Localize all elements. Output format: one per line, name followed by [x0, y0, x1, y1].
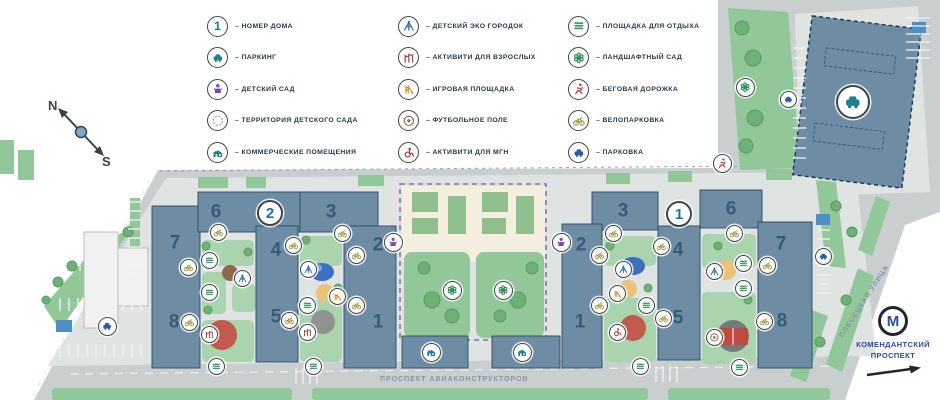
eco-icon	[709, 266, 720, 277]
legend-icon-land	[568, 47, 589, 68]
legend-item-eco: – ДЕТСКИЙ ЭКО ГОРОДОК	[398, 15, 523, 37]
bike-icon	[351, 300, 362, 311]
eco-icon	[618, 264, 629, 275]
bench-icon	[738, 283, 749, 294]
legend-icon-parkingcar	[207, 47, 228, 68]
play-icon	[612, 288, 623, 299]
map-icon-bike	[281, 312, 298, 329]
run-icon	[572, 82, 586, 96]
legend-icon-bike	[568, 110, 589, 131]
map-icon-num-number: 2	[257, 200, 283, 226]
legend-item-mgn: – АКТИВИТИ ДЛЯ МГН	[398, 141, 509, 163]
bench-icon	[204, 287, 215, 298]
map-icon-bike	[726, 225, 743, 242]
map-icon-bench	[735, 255, 752, 272]
kind-icon	[211, 82, 225, 96]
map-icon-bike	[210, 224, 227, 241]
adults-icon	[204, 329, 215, 340]
legend-icon-commercial	[207, 142, 228, 163]
legend-label: – АКТИВИТИ ДЛЯ МГН	[426, 149, 509, 156]
map-icon-parkblue	[815, 248, 832, 265]
bike-icon	[183, 262, 194, 273]
kind-icon	[387, 236, 399, 248]
metro-station-line1: КОМЕНДАНТСКИЙ	[846, 340, 940, 351]
commercial-icon	[516, 346, 528, 358]
map-icon-bench	[731, 359, 748, 376]
metro-station-line2: ПРОСПЕКТ	[846, 351, 940, 362]
legend-label: – ИГРОВАЯ ПЛОЩАДКА	[426, 86, 515, 93]
map-icon-bike	[181, 314, 198, 331]
parkblue-icon	[572, 146, 586, 160]
parkblue-icon	[783, 94, 794, 105]
adults-icon	[402, 51, 416, 65]
eco-icon	[303, 264, 314, 275]
legend-item-parkingcar: – ПАРКИНГ	[207, 47, 276, 69]
map-icon-play	[609, 285, 626, 302]
legend-icon-play	[398, 79, 419, 100]
legend-label: – КОММЕРЧЕСКИЕ ПОМЕЩЕНИЯ	[235, 149, 356, 156]
play-icon	[332, 291, 343, 302]
legend-label: – НОМЕР ДОМА	[235, 23, 293, 30]
legend-label: – АКТИВИТИ ДЛЯ ВЗРОСЛЫХ	[426, 54, 536, 61]
legend-item-run: – БЕГОВАЯ ДОРОЖКА	[568, 78, 678, 100]
legend-item-kind: – ДЕТСКИЙ САД	[207, 78, 295, 100]
building-number: 8	[169, 313, 180, 332]
bike-icon	[608, 228, 619, 239]
legend-label: – ВЕЛОПАРКОВКА	[596, 117, 665, 124]
legend-icon-foot	[398, 110, 419, 131]
legend-icon-adults	[398, 47, 419, 68]
map-icon-bench	[299, 297, 316, 314]
building-number: 2	[373, 236, 384, 255]
building-number: 5	[673, 309, 684, 328]
run-icon	[716, 157, 728, 169]
land-icon	[739, 81, 751, 93]
building-number: 3	[326, 203, 337, 222]
parkblue-icon	[101, 320, 113, 332]
bench-icon	[211, 361, 222, 372]
map-icon-parkingcar	[836, 85, 870, 119]
bench-icon	[641, 300, 652, 311]
eco-icon	[237, 273, 248, 284]
legend-label: – ПЛОЩАДКА ДЛЯ ОТДЫХА	[596, 23, 699, 30]
eco-icon	[402, 19, 416, 33]
house-number-text: 1	[675, 207, 683, 222]
bike-icon	[288, 240, 299, 251]
map-icon-bike	[180, 259, 197, 276]
parkingcar-icon	[842, 91, 864, 113]
house-number-text: 1	[214, 20, 221, 32]
legend-item-adults: – АКТИВИТИ ДЛЯ ВЗРОСЛЫХ	[398, 47, 536, 69]
map-icon-parkblue	[780, 91, 797, 108]
compass: N S	[36, 92, 122, 176]
site-plan-page: N S 1– НОМЕР ДОМА– ПАРКИНГ– ДЕТСКИЙ САД–…	[0, 0, 940, 400]
parkingcar-icon	[211, 51, 225, 65]
map-icon-kind	[384, 233, 403, 252]
map-icon-commercial	[422, 343, 441, 362]
map-icon-bike	[348, 297, 365, 314]
map-icon-adults	[299, 324, 316, 341]
bike-icon	[759, 316, 770, 327]
legend-item-parkblue: – ПАРКОВКА	[568, 141, 643, 163]
metro-direction-arrow	[863, 364, 923, 378]
legend-label: – ЛАНДШАФТНЫЙ САД	[596, 54, 682, 61]
map-icon-eco	[615, 261, 632, 278]
bench-icon	[302, 300, 313, 311]
bike-icon	[572, 114, 586, 128]
legend-label: – ПАРКИНГ	[235, 54, 276, 61]
legend-item-land: – ЛАНДШАФТНЫЙ САД	[568, 47, 682, 69]
building-number: 7	[170, 234, 181, 253]
foot-icon	[709, 332, 720, 343]
map-icon-land	[443, 281, 462, 300]
map-icon-eco	[706, 263, 723, 280]
legend-item-bench: – ПЛОЩАДКА ДЛЯ ОТДЫХА	[568, 15, 699, 37]
bike-icon	[762, 260, 773, 271]
commercial-icon	[425, 346, 437, 358]
bike-icon	[658, 313, 669, 324]
kind-icon	[555, 236, 567, 248]
map-icon-land	[736, 78, 755, 97]
play-icon	[402, 82, 416, 96]
legend-label: – БЕГОВАЯ ДОРОЖКА	[596, 86, 678, 93]
map-icon-land	[494, 281, 513, 300]
map-icon-bench	[201, 252, 218, 269]
adults-icon	[302, 327, 313, 338]
legend-label: – ТЕРРИТОРИЯ ДЕТСКОГО САДА	[235, 117, 358, 124]
legend-label: – ДЕТСКИЙ САД	[235, 86, 295, 93]
building-number: 1	[575, 313, 586, 332]
commercial-icon	[211, 146, 225, 160]
building	[152, 206, 200, 368]
bench-icon	[734, 362, 745, 373]
metro-icon: М	[878, 306, 908, 336]
legend-icon-num-number: 1	[207, 16, 228, 37]
land-icon	[446, 284, 458, 296]
building-number: 6	[211, 203, 222, 222]
legend-item-bike: – ВЕЛОПАРКОВКА	[568, 110, 665, 132]
bench-icon	[635, 361, 646, 372]
building-number: 8	[777, 312, 788, 331]
map-icon-bench	[632, 358, 649, 375]
map-icon-bike	[759, 257, 776, 274]
map-icon-num-number: 1	[666, 201, 692, 227]
parkblue-icon	[818, 251, 829, 262]
map-icon-eco	[234, 270, 251, 287]
map-icon-bike	[653, 238, 670, 255]
bike-icon	[729, 228, 740, 239]
foot-icon	[402, 114, 416, 128]
map-icon-kind	[552, 233, 571, 252]
legend-item-territory: – ТЕРРИТОРИЯ ДЕТСКОГО САДА	[207, 110, 358, 132]
bike-icon	[656, 241, 667, 252]
building-number: 4	[673, 241, 684, 260]
street-label-prospekt-aviakonstruktorov: ПРОСПЕКТ АВИАКОНСТРУКТОРОВ	[380, 376, 529, 383]
legend-label: – ФУТБОЛЬНОЕ ПОЛЕ	[426, 117, 508, 124]
land-icon	[497, 284, 509, 296]
land-icon	[572, 51, 586, 65]
map-icon-foot	[706, 329, 723, 346]
map-icon-mgn	[609, 324, 626, 341]
legend-item-num: 1– НОМЕР ДОМА	[207, 15, 293, 37]
legend-icon-mgn	[398, 142, 419, 163]
map-icon-bike	[348, 247, 365, 264]
building-number: 2	[576, 236, 587, 255]
bench-icon	[204, 255, 215, 266]
map-icon-bike	[285, 237, 302, 254]
legend-icon-kind	[207, 79, 228, 100]
legend-icon-parkblue	[568, 142, 589, 163]
map-icon-parkblue	[98, 317, 117, 336]
map-icon-bike	[334, 225, 351, 242]
legend-item-foot: – ФУТБОЛЬНОЕ ПОЛЕ	[398, 110, 508, 132]
bike-icon	[351, 250, 362, 261]
building-number: 7	[776, 235, 787, 254]
legend-label: – ПАРКОВКА	[596, 149, 643, 156]
legend-item-play: – ИГРОВАЯ ПЛОЩАДКА	[398, 78, 515, 100]
building-number: 4	[271, 241, 282, 260]
bike-icon	[594, 300, 605, 311]
bike-icon	[213, 227, 224, 238]
legend-label: – ДЕТСКИЙ ЭКО ГОРОДОК	[426, 23, 523, 30]
map-icon-bike	[591, 247, 608, 264]
map-icon-bench	[201, 284, 218, 301]
map-icon-bench	[638, 297, 655, 314]
bike-icon	[184, 317, 195, 328]
legend-icon-territory	[207, 110, 228, 131]
map-icon-bench	[735, 280, 752, 297]
metro-callout: М КОМЕНДАНТСКИЙ ПРОСПЕКТ	[846, 306, 940, 383]
legend-item-commercial: – КОММЕРЧЕСКИЕ ПОМЕЩЕНИЯ	[207, 141, 356, 163]
map-icon-bike	[605, 225, 622, 242]
map-icon-play	[329, 288, 346, 305]
building-number: 5	[271, 308, 282, 327]
compass-south-label: S	[102, 154, 111, 169]
map-icon-bench	[208, 358, 225, 375]
map-icon-eco	[300, 261, 317, 278]
house-number-text: 2	[266, 206, 274, 221]
building-number: 6	[726, 200, 737, 219]
map-icon-bike	[756, 313, 773, 330]
bench-icon	[738, 258, 749, 269]
legend-icon-bench	[568, 16, 589, 37]
bike-icon	[284, 315, 295, 326]
bench-icon	[308, 361, 319, 372]
compass-north-label: N	[48, 98, 57, 113]
map-icon-bench	[305, 358, 322, 375]
map-icon-bike	[655, 310, 672, 327]
bench-icon	[572, 19, 586, 33]
bike-icon	[337, 228, 348, 239]
map-icon-run	[713, 154, 732, 173]
mgn-icon	[402, 146, 416, 160]
mgn-icon	[612, 327, 623, 338]
map-icon-bike	[591, 297, 608, 314]
legend-icon-eco	[398, 16, 419, 37]
bike-icon	[594, 250, 605, 261]
building-number: 3	[618, 202, 629, 221]
map-icon-adults	[201, 326, 218, 343]
legend-icon-run	[568, 79, 589, 100]
territory-icon	[211, 114, 225, 128]
map-icon-commercial	[513, 343, 532, 362]
building-number: 1	[373, 313, 384, 332]
